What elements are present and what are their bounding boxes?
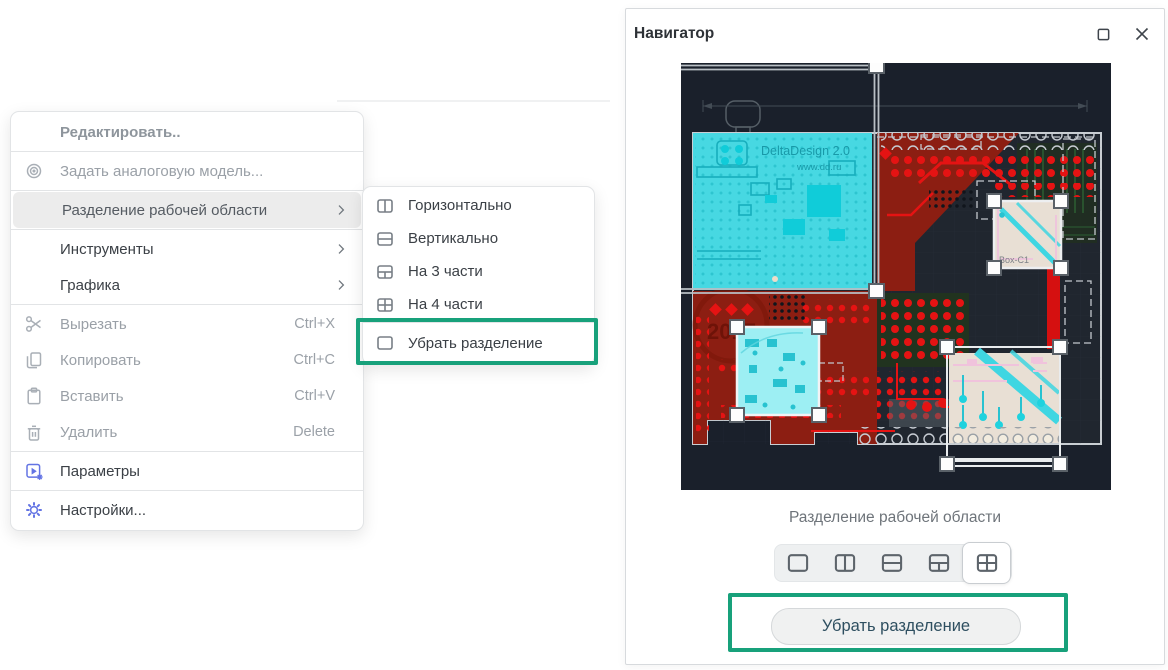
menu-item-copy: Копировать Ctrl+C [11, 342, 363, 378]
split-four-parts-icon [375, 295, 395, 315]
menu-item-label: Редактировать.. [60, 124, 349, 141]
menu-item-edit-header: Редактировать.. [11, 114, 363, 150]
menu-separator [11, 151, 363, 152]
shortcut-label: Ctrl+X [294, 316, 335, 332]
menu-separator [11, 229, 363, 230]
menu-item-label: Инструменты [60, 241, 333, 258]
menu-item-label: Разделение рабочей области [62, 202, 333, 219]
menu-item-label: Вырезать [60, 316, 294, 333]
split-four-parts-button[interactable] [962, 542, 1011, 584]
menu-item-label: Параметры [60, 463, 349, 480]
menu-item-label: Копировать [60, 352, 294, 369]
context-menu: Редактировать.. Задать аналоговую модель… [10, 111, 364, 531]
blank-icon-space [25, 200, 47, 220]
submenu-item-vertical[interactable]: Вертикально [363, 222, 594, 255]
submenu-item-label: На 3 части [408, 263, 582, 280]
menu-item-graphics[interactable]: Графика [11, 267, 363, 303]
submenu-item-label: Горизонтально [408, 197, 582, 214]
workspace-split-submenu: Горизонтально Вертикально На 3 части На … [362, 186, 595, 365]
background-edge-line [337, 100, 610, 102]
menu-item-cut: Вырезать Ctrl+X [11, 306, 363, 342]
menu-item-label: Вставить [60, 388, 294, 405]
submenu-item-remove-split[interactable]: Убрать разделение [363, 324, 594, 362]
menu-item-paste: Вставить Ctrl+V [11, 378, 363, 414]
submenu-item-label: На 4 части [408, 296, 582, 313]
chevron-right-icon [333, 202, 349, 218]
split-three-parts-icon [375, 262, 395, 282]
menu-item-parameters[interactable]: Параметры [11, 453, 363, 489]
chevron-right-icon [333, 241, 349, 257]
shortcut-label: Delete [293, 424, 335, 440]
close-button[interactable] [1133, 25, 1151, 43]
submenu-item-four-parts[interactable]: На 4 части [363, 288, 594, 321]
pcb-preview[interactable]: 2017 [681, 63, 1111, 490]
menu-item-delete: Удалить Delete [11, 414, 363, 450]
copy-icon [23, 350, 45, 370]
gear-icon [23, 500, 45, 520]
split-horizontal-button[interactable] [822, 544, 869, 582]
menu-item-label: Настройки... [60, 502, 349, 519]
split-three-parts-button[interactable] [915, 544, 962, 582]
clipboard-icon [23, 386, 45, 406]
menu-separator [11, 304, 363, 305]
split-vertical-button[interactable] [869, 544, 916, 582]
submenu-item-label: Вертикально [408, 230, 582, 247]
submenu-item-horizontal[interactable]: Горизонтально [363, 189, 594, 222]
split-vertical-icon [375, 229, 395, 249]
menu-separator [11, 490, 363, 491]
scissors-icon [23, 314, 45, 334]
pcb-selection-mid-left [730, 320, 826, 422]
pcb-site-watermark: www.dd.ru [796, 162, 841, 173]
blank-icon-space [23, 239, 45, 259]
menu-separator [11, 451, 363, 452]
spiral-icon [23, 161, 45, 181]
menu-item-workspace-split[interactable]: Разделение рабочей области [13, 192, 361, 228]
menu-item-settings[interactable]: Настройки... [11, 492, 363, 528]
split-none-icon [375, 333, 395, 353]
blank-icon-space [23, 122, 45, 142]
shortcut-label: Ctrl+V [294, 388, 335, 404]
navigator-panel: Навигатор [625, 8, 1165, 665]
split-horizontal-icon [375, 196, 395, 216]
pcb-selection-box-c1: Box-C1 [987, 194, 1068, 275]
trash-icon [23, 422, 45, 442]
submenu-item-label: Убрать разделение [408, 335, 582, 352]
menu-item-tools[interactable]: Инструменты [11, 231, 363, 267]
menu-item-label: Задать аналоговую модель... [60, 163, 349, 180]
blank-icon-space [23, 275, 45, 295]
shortcut-label: Ctrl+C [294, 352, 336, 368]
menu-item-label: Графика [60, 277, 333, 294]
submenu-item-three-parts[interactable]: На 3 части [363, 255, 594, 288]
remove-split-button[interactable]: Убрать разделение [771, 608, 1021, 645]
menu-item-analog-model: Задать аналоговую модель... [11, 153, 363, 189]
split-section-label: Разделение рабочей области [626, 509, 1164, 527]
panel-title: Навигатор [634, 25, 714, 43]
pcb-selected-region: DeltaDesign 2.0 www.dd.ru [693, 133, 872, 290]
pcb-brand-watermark: DeltaDesign 2.0 [761, 144, 850, 158]
split-none-button[interactable] [775, 544, 822, 582]
pcb-component-label: Box-C1 [999, 255, 1029, 265]
maximize-button[interactable] [1094, 25, 1112, 43]
run-parameters-icon [23, 461, 45, 481]
menu-separator [11, 190, 363, 191]
chevron-right-icon [333, 277, 349, 293]
menu-item-label: Удалить [60, 424, 293, 441]
split-mode-segmented-control [774, 544, 1012, 582]
menu-separator [363, 322, 594, 323]
